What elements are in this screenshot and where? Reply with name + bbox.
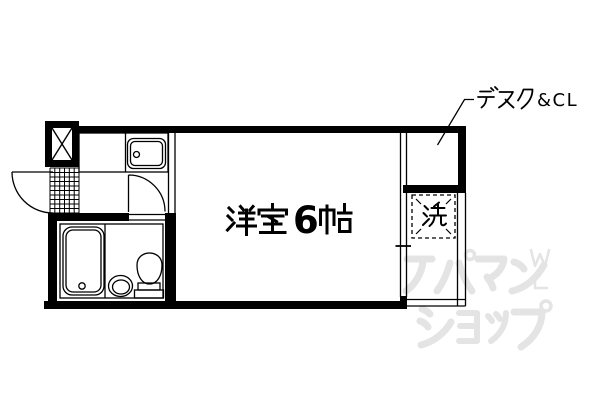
room-label: 6 [228,199,352,242]
watermark-glyph-yo [459,313,477,341]
washer-kanji-sen [423,203,446,227]
watermark-glyph-pa [437,263,472,291]
bathroom-door [129,175,166,212]
bathtub [63,227,104,295]
desk-closet-label-glyphs [478,87,533,109]
watermark-glyph-n [512,262,544,291]
watermark-glyph-pu [514,312,542,347]
washing-machine-space [412,195,455,238]
desk-kana-ku [518,90,533,109]
watermark-glyph-a [406,259,432,291]
room-kanji-you [228,207,256,235]
watermark-glyph-pu-handakuten [541,301,551,311]
bathroom [60,175,166,298]
walls [44,126,466,309]
room-label-digit: 6 [293,199,319,242]
bathroom-doorway-sill [129,215,166,221]
veranda-bottom-line [407,300,466,307]
entrance-door [12,172,53,213]
room-label-glyphs [228,205,352,235]
bathtub-drain-icon [79,283,85,289]
desk-kana-su [499,92,514,108]
watermark-glyph-ma [478,259,504,288]
entrance-tile-grid [50,168,79,213]
wall-bath-left [48,213,57,309]
kitchen-sink-drain-icon [134,152,140,158]
kitchen-sink-inner [131,142,163,166]
veranda-right-line [458,193,466,306]
service-shaft [45,121,79,167]
floor-plan-page: 洋室6帖 デスク＆ＣＬ 洗 アパマン ショップ [0,0,600,400]
wash-basin-inner [113,280,130,294]
wall-bath-top [48,213,129,221]
desk-closet-leader-line [438,100,475,146]
toilet-bowl [137,253,162,284]
kitchen [79,133,168,172]
kitchen-room-partition [169,133,176,213]
toilet-tank [135,290,164,298]
room-kanji-shitsu [259,205,287,233]
washer-label-glyphs [423,203,446,227]
room-right-window-line [401,133,407,297]
entrance [12,168,79,213]
wall-desk-right [458,126,466,193]
watermark-w-mark [531,250,549,266]
wall-room-left [165,213,176,309]
bathroom-inner-boundary [60,224,163,298]
desk-closet-label-latin: &CL [537,90,578,111]
desk-kana-de [478,87,498,108]
wall-bottom [44,301,407,309]
watermark [406,250,551,347]
watermark-glyph-tsu [488,313,506,341]
wall-desk-bottom [403,185,466,193]
watermark-glyph-shi [420,309,451,345]
watermark-glyph-pa-handakuten [466,251,475,260]
floor-plan-drawing: 6 &CL [0,0,600,400]
room-kanji-jou [321,205,352,234]
wall-top [45,126,466,133]
